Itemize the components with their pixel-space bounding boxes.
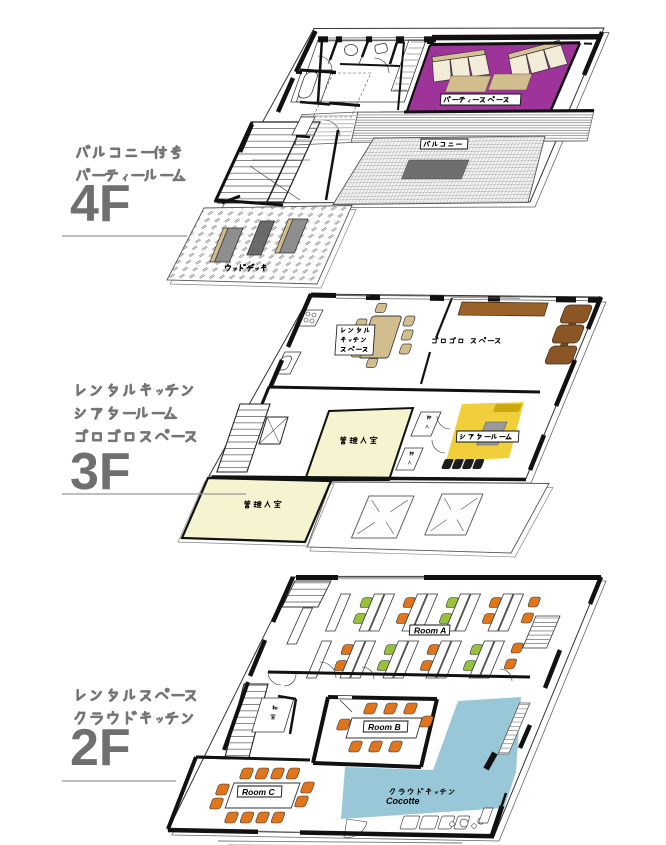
svg-text:Cocotte: Cocotte xyxy=(386,796,420,806)
svg-text:2F: 2F xyxy=(70,719,131,777)
svg-text:4F: 4F xyxy=(70,175,131,233)
svg-text:Room C: Room C xyxy=(242,787,275,797)
svg-text:Room A: Room A xyxy=(414,626,446,636)
svg-text:Room B: Room B xyxy=(368,722,401,732)
svg-text:3F: 3F xyxy=(70,443,131,501)
